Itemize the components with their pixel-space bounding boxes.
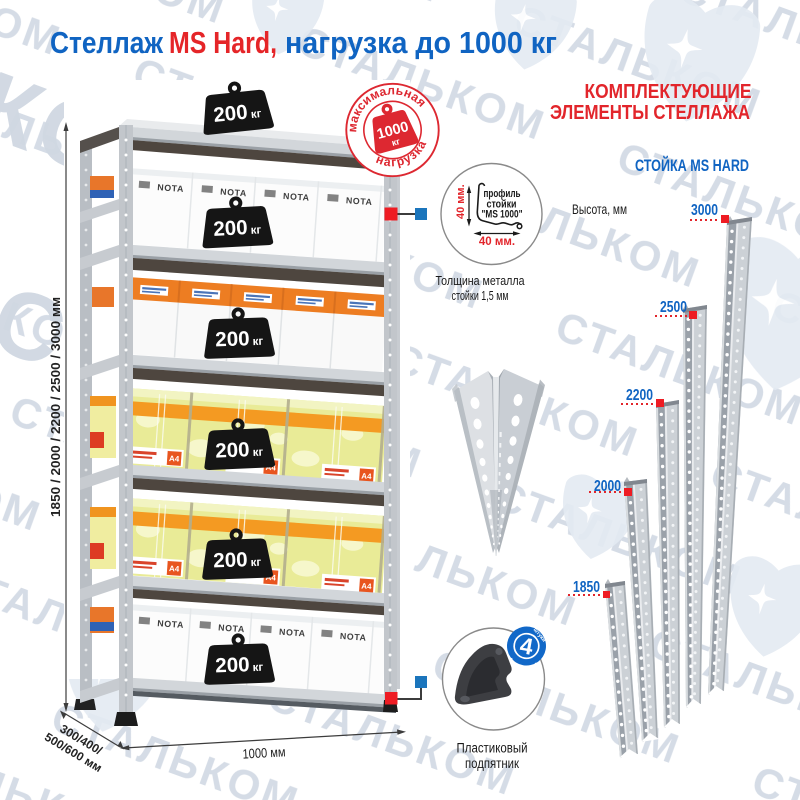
svg-text:стойки 1,5 мм: стойки 1,5 мм	[452, 289, 509, 303]
svg-text:ЭЛЕМЕНТЫ СТЕЛЛАЖА: ЭЛЕМЕНТЫ СТЕЛЛАЖА	[550, 102, 750, 124]
svg-text:A4: A4	[361, 472, 372, 482]
svg-text:A4: A4	[169, 564, 180, 574]
svg-text:NOTA: NOTA	[283, 191, 310, 203]
svg-text:2200: 2200	[626, 387, 653, 404]
svg-text:1000 мм: 1000 мм	[242, 744, 286, 761]
svg-text:MS Hard,: MS Hard,	[169, 25, 277, 60]
svg-text:"MS 1000": "MS 1000"	[482, 209, 523, 221]
svg-text:NOTA: NOTA	[279, 627, 306, 639]
svg-text:Стеллаж: Стеллаж	[50, 25, 164, 60]
svg-text:1850 / 2000 / 2200 / 2500 / 30: 1850 / 2000 / 2200 / 2500 / 3000 мм	[48, 297, 63, 517]
svg-text:NOTA: NOTA	[218, 622, 245, 634]
svg-text:NOTA: NOTA	[346, 195, 373, 207]
svg-text:нагрузка до 1000 кг: нагрузка до 1000 кг	[285, 25, 557, 60]
svg-text:NOTA: NOTA	[220, 187, 247, 199]
svg-text:A4: A4	[169, 454, 180, 464]
svg-text:КОМПЛЕКТУЮЩИЕ: КОМПЛЕКТУЮЩИЕ	[585, 81, 752, 103]
svg-text:Пластиковый: Пластиковый	[457, 741, 528, 756]
svg-text:40 мм.: 40 мм.	[479, 236, 515, 248]
svg-text:2000: 2000	[594, 478, 621, 495]
svg-text:NOTA: NOTA	[157, 182, 184, 194]
svg-text:3000: 3000	[691, 202, 718, 219]
svg-text:подпятник: подпятник	[465, 756, 519, 771]
svg-text:Высота, мм: Высота, мм	[572, 201, 627, 217]
svg-text:40 мм.: 40 мм.	[455, 184, 467, 219]
svg-text:A4: A4	[361, 582, 372, 592]
svg-text:Толщина металла: Толщина металла	[436, 274, 525, 288]
svg-text:NOTA: NOTA	[340, 631, 367, 643]
svg-text:NOTA: NOTA	[157, 618, 184, 630]
svg-text:2500: 2500	[660, 299, 687, 316]
svg-text:1850: 1850	[573, 579, 600, 596]
svg-text:СТОЙКА MS HARD: СТОЙКА MS HARD	[635, 156, 749, 175]
